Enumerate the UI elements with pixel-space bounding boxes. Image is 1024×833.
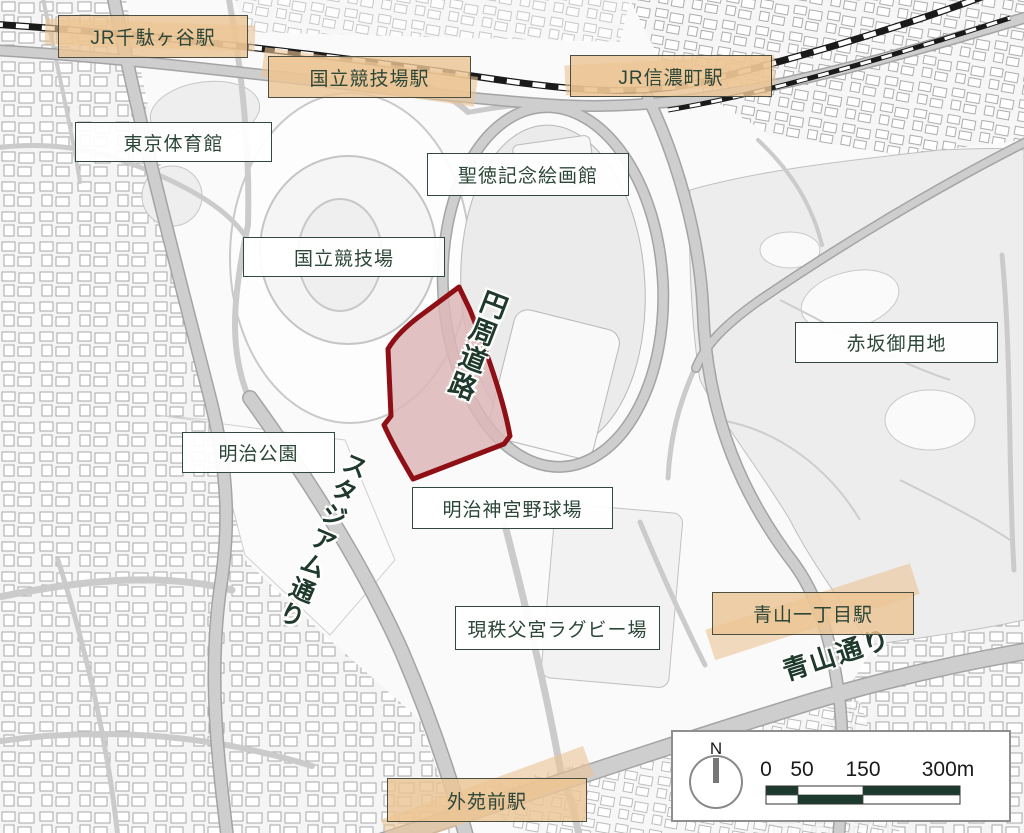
scale-bar: N 0 50 150 300m [672, 731, 1010, 821]
facility-label-jingu-baseball: 明治神宮野球場 [412, 487, 613, 529]
station-label-sendagaya: JR千駄ヶ谷駅 [58, 15, 248, 58]
facility-label-seitoku-gallery: 聖徳記念絵画館 [427, 153, 629, 196]
scale-tick-150: 150 [845, 758, 880, 781]
facility-label-tokyo-gymnasium: 東京体育館 [75, 122, 272, 162]
scale-tick-0: 0 [760, 758, 772, 781]
scale-tick-50: 50 [790, 758, 813, 781]
facility-label-meiji-park: 明治公園 [182, 432, 335, 473]
map-canvas: N 0 50 150 300m JR千駄ヶ谷駅 国立競技場駅 JR信濃町駅 青山… [0, 0, 1024, 833]
station-label-gaiemmae: 外苑前駅 [387, 778, 587, 822]
scale-tick-300: 300m [922, 758, 975, 781]
station-label-kokuritsu-kyogijo: 国立競技場駅 [268, 56, 471, 98]
station-label-shinanomachi: JR信濃町駅 [570, 55, 772, 97]
station-label-aoyama-itchome: 青山一丁目駅 [712, 592, 914, 635]
facility-label-akasaka-estate: 赤坂御用地 [795, 322, 998, 363]
compass-north-label: N [710, 739, 722, 758]
facility-label-chichibunomiya-rugby: 現秩父宮ラグビー場 [455, 606, 660, 650]
facility-label-national-stadium: 国立競技場 [243, 237, 445, 277]
